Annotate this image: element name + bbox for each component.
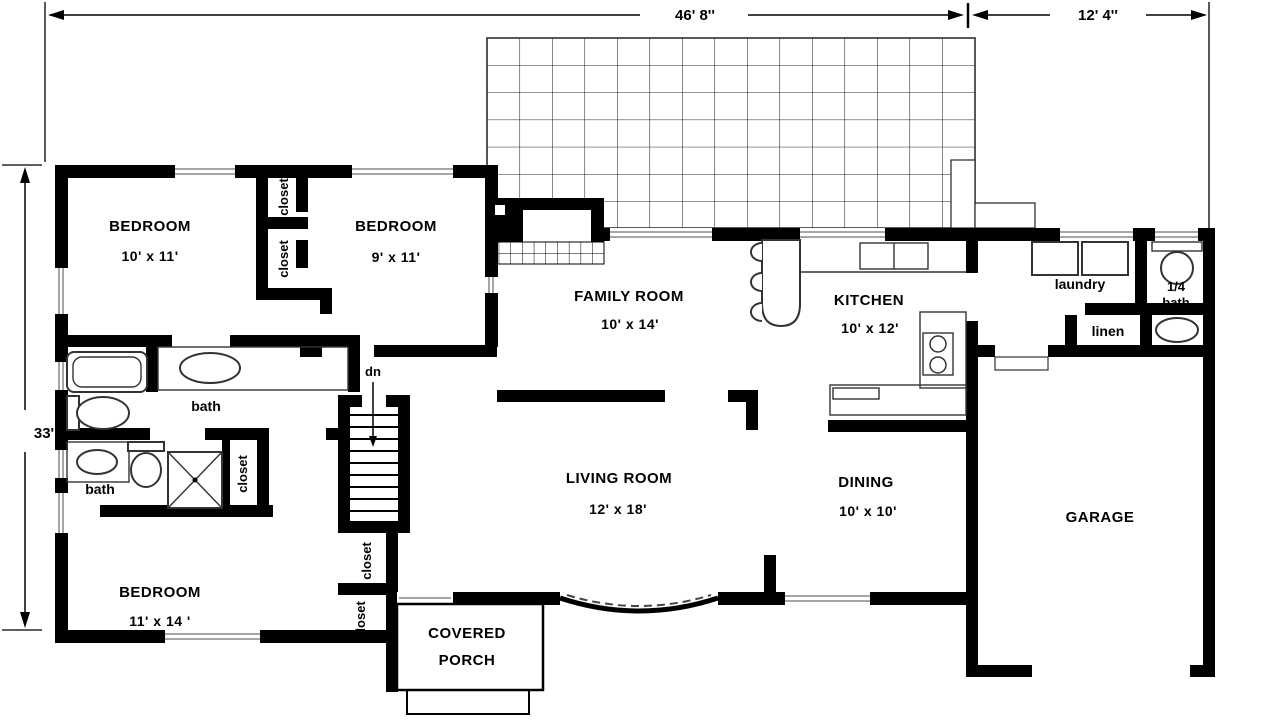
- toilet: [77, 397, 129, 429]
- kitchen-size: 10' x 12': [841, 320, 899, 336]
- dimension-width-main: 46' 8'': [675, 7, 715, 24]
- porch-label-2: PORCH: [439, 652, 496, 669]
- stairs: [350, 415, 398, 511]
- family-room-size: 10' x 14': [601, 316, 659, 332]
- closet-label: closet: [359, 542, 374, 580]
- washer: [1032, 242, 1078, 275]
- deck-step: [975, 203, 1035, 228]
- quarter-bath-label-1: 1/4: [1167, 279, 1186, 294]
- fireplace: [487, 198, 604, 264]
- bedroom2-size: 9' x 11': [372, 249, 421, 265]
- closet-label: closet: [276, 178, 291, 216]
- kitchen-counter: [830, 385, 966, 415]
- toilet: [131, 453, 161, 487]
- stairs-down-label: dn: [365, 364, 381, 379]
- bedroom2-label: BEDROOM: [355, 218, 437, 235]
- laundry-label: laundry: [1055, 276, 1106, 292]
- kitchen-label: KITCHEN: [834, 292, 904, 309]
- closet-label: closet: [276, 240, 291, 278]
- porch-label-1: COVERED: [428, 625, 506, 642]
- toilet-tank: [1152, 242, 1202, 251]
- bedroom1-label: BEDROOM: [109, 218, 191, 235]
- bath-hall-label: bath: [191, 398, 221, 414]
- deck-notch: [951, 160, 975, 228]
- dishwasher: [833, 388, 879, 399]
- dimension-height-left: 33': [34, 425, 54, 442]
- kitchen-sink: [860, 243, 928, 269]
- living-room-size: 12' x 18': [589, 501, 647, 517]
- toilet-tank: [128, 442, 164, 451]
- sink: [180, 353, 240, 383]
- closet-label: closet: [235, 455, 250, 493]
- living-room-label: LIVING ROOM: [566, 470, 672, 487]
- dining-size: 10' x 10': [839, 503, 897, 519]
- porch-outline: [397, 604, 543, 690]
- bedroom1-size: 10' x 11': [121, 248, 178, 264]
- breakfast-bar: [762, 240, 800, 326]
- bar-stool: [751, 303, 762, 321]
- bedroom3-label: BEDROOM: [119, 584, 201, 601]
- bar-stool: [751, 273, 762, 291]
- linen-label: linen: [1092, 323, 1125, 339]
- floor-plan-drawing: 46' 8'' 12' 4'' 33' BEDROOM 10' x 11' BE…: [0, 0, 1280, 720]
- stove: [923, 333, 953, 375]
- sink: [1156, 318, 1198, 342]
- floor-plan-page: 46' 8'' 12' 4'' 33' BEDROOM 10' x 11' BE…: [0, 0, 1280, 720]
- dryer: [1082, 242, 1128, 275]
- quarter-bath-label-2: bath: [1162, 295, 1190, 310]
- porch-step: [407, 690, 529, 714]
- garage-label: GARAGE: [1066, 509, 1135, 526]
- bath-lower-label: bath: [85, 481, 115, 497]
- sink: [77, 450, 117, 474]
- bay-window: [560, 595, 718, 611]
- dining-label: DINING: [838, 474, 894, 491]
- bar-stool: [751, 243, 762, 261]
- dimension-width-garage: 12' 4'': [1078, 7, 1118, 24]
- bedroom3-size: 11' x 14 ': [129, 613, 191, 629]
- family-room-label: FAMILY ROOM: [574, 288, 684, 305]
- closet-label: closet: [353, 601, 368, 639]
- hearth-tiles: [487, 242, 604, 264]
- shower: [168, 452, 222, 508]
